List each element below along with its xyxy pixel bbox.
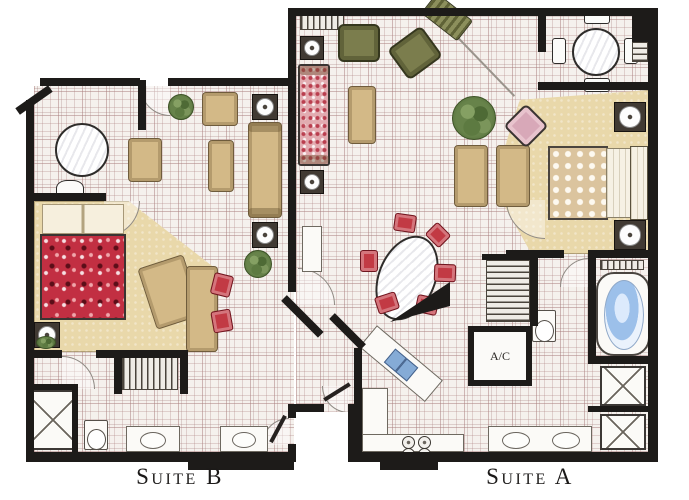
a-sofa-pink bbox=[298, 64, 330, 166]
b-side-table-lamp-top bbox=[252, 94, 278, 120]
wall bbox=[588, 250, 596, 364]
a-dining-chair-3 bbox=[434, 264, 457, 283]
wall bbox=[588, 406, 658, 412]
wall bbox=[72, 384, 78, 456]
suite-b-label: Suite B bbox=[70, 464, 290, 490]
wall bbox=[530, 256, 538, 326]
a-nightstand-lamp-2 bbox=[614, 220, 646, 250]
ac-closet-label: A/C bbox=[490, 350, 510, 363]
a-foyer-console bbox=[302, 226, 322, 272]
wall bbox=[26, 384, 78, 390]
wall bbox=[138, 80, 146, 130]
b-side-table-lamp-bottom bbox=[252, 222, 278, 248]
b-vanity-2-sink bbox=[232, 432, 256, 448]
a-nook-table bbox=[572, 28, 620, 76]
a-nightstand-lamp-1 bbox=[614, 102, 646, 132]
floorplan: A/C Suite B Suite A bbox=[0, 0, 689, 500]
b-desk-chair-2 bbox=[210, 308, 234, 333]
b-nook-armchair bbox=[128, 138, 162, 182]
lamp-icon bbox=[304, 40, 321, 57]
wall bbox=[352, 452, 658, 462]
a-dining-chair-1 bbox=[393, 213, 417, 234]
wall bbox=[538, 8, 546, 52]
a-dining-chair-6 bbox=[360, 250, 378, 272]
a-vanity-sink-2 bbox=[552, 432, 580, 449]
a-shower-1 bbox=[600, 366, 646, 406]
a-vanity-sink-1 bbox=[502, 432, 530, 449]
b-armchair bbox=[202, 92, 238, 126]
lamp-icon bbox=[304, 174, 321, 191]
a-nook-chair-w bbox=[552, 38, 566, 64]
a-side-table-lamp-2 bbox=[300, 170, 324, 194]
b-vanity-sink bbox=[140, 432, 166, 449]
a-shower-2 bbox=[600, 414, 646, 450]
lamp-icon bbox=[619, 106, 641, 127]
lamp-icon bbox=[256, 98, 274, 116]
lamp-icon bbox=[256, 226, 274, 244]
lamp-icon bbox=[619, 224, 641, 245]
wall bbox=[40, 78, 140, 86]
b-round-table bbox=[55, 123, 109, 177]
wall bbox=[26, 100, 34, 462]
a-plant-large bbox=[452, 96, 496, 140]
b-coffee-table bbox=[208, 140, 234, 192]
wall bbox=[96, 350, 186, 358]
foyer-plant bbox=[244, 250, 272, 278]
wall bbox=[168, 78, 294, 86]
wall bbox=[648, 8, 658, 462]
wall bbox=[588, 356, 658, 364]
suite-a-label: Suite A bbox=[420, 464, 640, 490]
wall bbox=[26, 452, 296, 462]
b-sofa bbox=[248, 122, 282, 218]
wall bbox=[26, 193, 106, 201]
tub-water bbox=[604, 280, 644, 350]
wall bbox=[114, 350, 122, 394]
a-bed-dotted bbox=[548, 146, 608, 220]
b-shower bbox=[32, 390, 74, 450]
b-closet-hangers bbox=[122, 356, 178, 390]
ac-closet: A/C bbox=[468, 326, 532, 386]
wall bbox=[588, 250, 658, 258]
b-bed-red-floral bbox=[40, 234, 126, 320]
b-toilet bbox=[84, 420, 108, 450]
a-coffee-table bbox=[348, 86, 376, 144]
b-bed-pillows bbox=[42, 204, 124, 234]
wall bbox=[538, 82, 658, 90]
entry-notch bbox=[296, 412, 348, 462]
wall bbox=[180, 350, 188, 394]
a-pantry-shelves bbox=[486, 260, 530, 322]
a-headboard bbox=[630, 146, 648, 220]
wall bbox=[288, 444, 296, 462]
wall bbox=[288, 8, 296, 292]
b-plant bbox=[168, 94, 194, 120]
wall bbox=[288, 8, 650, 16]
wall bbox=[26, 350, 62, 358]
a-side-table-lamp-1 bbox=[300, 36, 324, 60]
a-green-armchair-1 bbox=[338, 24, 380, 62]
b-plant-small bbox=[36, 336, 56, 349]
a-armchair-2 bbox=[496, 145, 530, 207]
wall bbox=[288, 404, 296, 418]
a-armchair-1 bbox=[454, 145, 488, 207]
wall bbox=[348, 404, 356, 462]
a-bed-sheet bbox=[606, 148, 632, 218]
a-linen-shelf bbox=[600, 260, 644, 270]
